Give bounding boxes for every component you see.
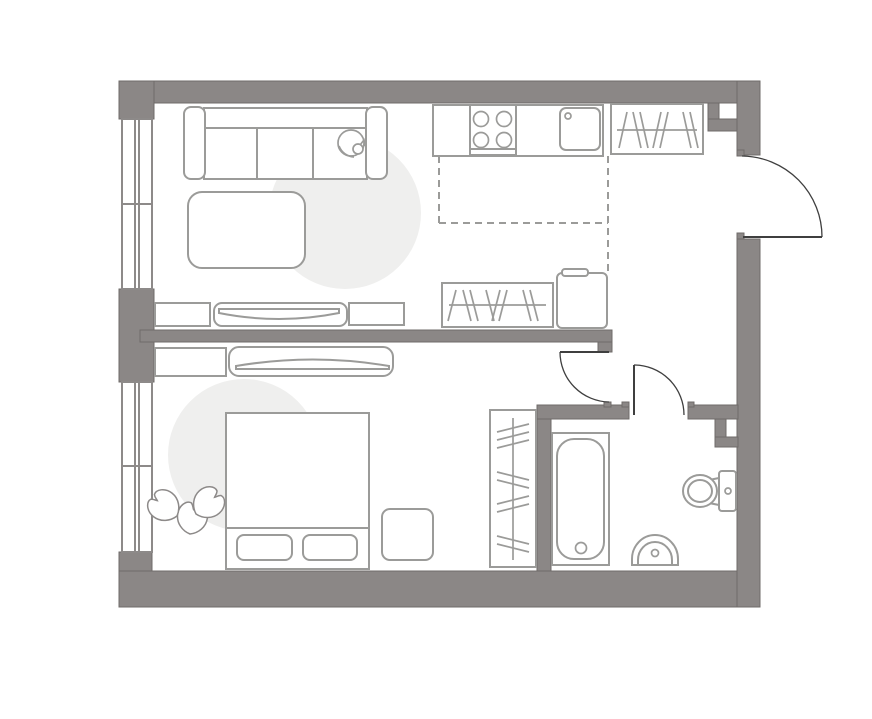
wall-top-left-corner: [119, 81, 154, 119]
wall-bathroom-north-left: [537, 405, 629, 419]
toilet-bowl-inner: [688, 480, 712, 502]
bed-pillow-2: [303, 535, 357, 560]
nightstand: [382, 509, 433, 560]
kitchen-sink-faucet: [565, 113, 571, 119]
tv-cabinet-right-living: [349, 303, 404, 325]
fridge: [557, 273, 607, 328]
sofa-armrest-right: [366, 107, 387, 179]
toilet-flush-button: [725, 488, 731, 494]
wall-bathroom-north-right: [688, 405, 738, 419]
stove-front-panel: [470, 149, 516, 155]
bathroom-door-swing: [634, 365, 684, 415]
bath-sink-faucet: [652, 550, 659, 557]
sleeping-cat-icon-head: [353, 144, 363, 154]
bedroom-door-swing: [560, 352, 609, 402]
floor-plan: [0, 0, 872, 719]
sofa-backrest: [204, 108, 367, 128]
floor-plan-svg: [0, 0, 872, 719]
fridge-handle: [562, 269, 588, 276]
bedroom-dresser: [155, 348, 226, 376]
bathtub-drain: [576, 543, 587, 554]
bedroom-door-jamb: [598, 342, 612, 352]
bath-niche-bottom-strip: [715, 437, 738, 447]
stove-burner-1: [474, 112, 489, 127]
wall-right-upper: [737, 81, 760, 155]
entrance-door-swing: [742, 156, 822, 237]
bath-door-jamb-right: [688, 402, 694, 407]
entry-door-jamb-top: [737, 150, 744, 156]
bathtub-inner: [557, 439, 604, 559]
wall-living-bedroom: [140, 330, 612, 342]
tv-cabinet-left-living: [155, 303, 210, 326]
entry-niche-bottom-strip: [708, 119, 737, 131]
wall-bathroom-west: [537, 405, 551, 571]
bed-pillow-1: [237, 535, 292, 560]
coffee-table: [188, 192, 305, 268]
wall-right-lower: [737, 239, 760, 607]
wall-top: [119, 81, 760, 103]
bedroom-door-stop: [604, 402, 611, 407]
sofa-armrest-left: [184, 107, 205, 179]
wall-bottom: [119, 571, 760, 607]
stove-burner-3: [474, 133, 489, 148]
entry-door-jamb-bottom: [737, 233, 744, 239]
stove-burner-2: [497, 112, 512, 127]
bath-door-jamb-left: [622, 402, 629, 407]
stove-burner-4: [497, 133, 512, 148]
